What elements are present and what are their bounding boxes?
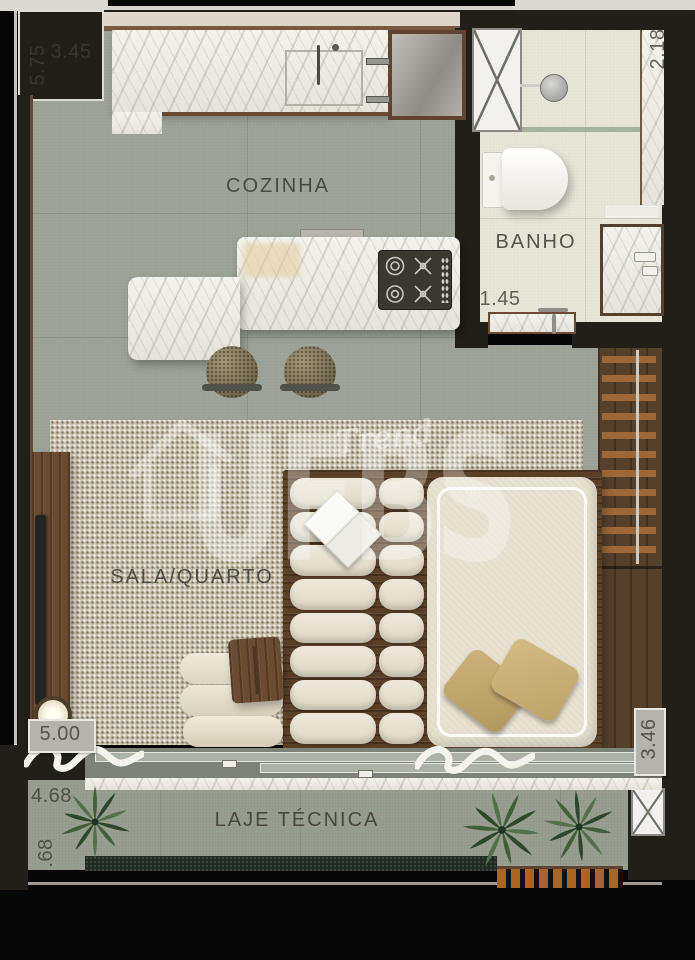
ottoman-cushion <box>183 716 283 747</box>
kitchen-window-sill <box>100 12 460 26</box>
tv <box>35 515 46 705</box>
vanity-faucet-icon <box>634 252 656 262</box>
cooktop <box>378 250 452 310</box>
stool-backrest <box>280 384 340 391</box>
dimension-label: 4.68 <box>31 785 95 807</box>
door-handle-icon <box>538 308 568 312</box>
wood-tray <box>228 636 284 703</box>
tile-joint <box>585 30 586 324</box>
tile-joint <box>33 213 462 214</box>
wardrobe-slats <box>602 352 656 562</box>
kitchen-sink <box>285 50 363 106</box>
room-label-laje-tecnica: LAJE TÉCNICA <box>195 809 399 832</box>
kitchen-counter-return <box>112 112 162 134</box>
cooktop-knobs-icon <box>441 257 449 303</box>
bed-cushion <box>379 680 424 711</box>
wardrobe-rail <box>636 350 639 564</box>
island-underlight <box>243 243 300 277</box>
room-label-cozinha: COZINHA <box>196 175 360 198</box>
dimension-label: 3.45 <box>39 41 103 63</box>
bed-cushion <box>290 646 376 677</box>
wardrobe <box>598 348 662 748</box>
wardrobe-divider <box>598 566 662 569</box>
toilet-bowl <box>502 148 568 210</box>
tile-joint <box>480 218 662 219</box>
dimension-label: 3.46 <box>638 707 660 771</box>
vent-shaft-top <box>472 28 522 132</box>
sliding-door-glass <box>95 752 657 762</box>
door-handle-icon <box>552 314 556 334</box>
bathroom-bottom-wall-right <box>572 322 695 348</box>
tray-handle <box>252 646 258 694</box>
dimension-label: 5.00 <box>28 723 92 745</box>
towel-rack <box>606 206 658 217</box>
shaft-x-icon <box>633 790 663 834</box>
bathroom-door-threshold <box>488 312 576 334</box>
bathroom-bottom-wall-left <box>455 322 488 348</box>
fridge <box>388 30 466 120</box>
shower-glass-partition <box>522 127 640 132</box>
sink-tap-icon <box>332 44 339 51</box>
shaft-x-icon <box>474 30 520 130</box>
stool-backrest <box>202 384 262 391</box>
door-handle-icon <box>222 760 237 768</box>
bed-cushion <box>290 680 376 711</box>
curtain-icon <box>415 740 535 774</box>
tile-joint <box>33 337 462 338</box>
bed-cushion <box>379 646 424 677</box>
dimension-label: .68 <box>35 821 57 885</box>
room-label-banho: BANHO <box>472 231 600 254</box>
balcony-drain-strip <box>85 856 497 871</box>
bed-cushion <box>290 713 376 744</box>
dimension-label: 2.18 <box>647 17 669 81</box>
toilet-flush-button <box>489 175 495 181</box>
floor-plan: 5.75 3.45 2.18 1.45 5.00 3.46 4.68 .68 C… <box>0 0 695 960</box>
shower-head-icon <box>540 74 568 102</box>
watermark-registered-icon: ® <box>466 484 481 507</box>
bed-cushion <box>290 613 376 644</box>
vanity-handle-icon <box>642 266 658 276</box>
door-handle-icon <box>366 58 390 65</box>
cooktop-burners-icon <box>381 253 437 307</box>
sink-faucet-icon <box>317 45 320 85</box>
right-wall <box>662 10 695 880</box>
dimension-label: 1.45 <box>468 288 532 310</box>
counter-front-edge <box>162 112 388 116</box>
door-handle-icon <box>358 770 373 778</box>
bed-cushion <box>379 613 424 644</box>
vent-shaft-bottom <box>631 788 665 836</box>
door-handle-icon <box>366 96 390 103</box>
